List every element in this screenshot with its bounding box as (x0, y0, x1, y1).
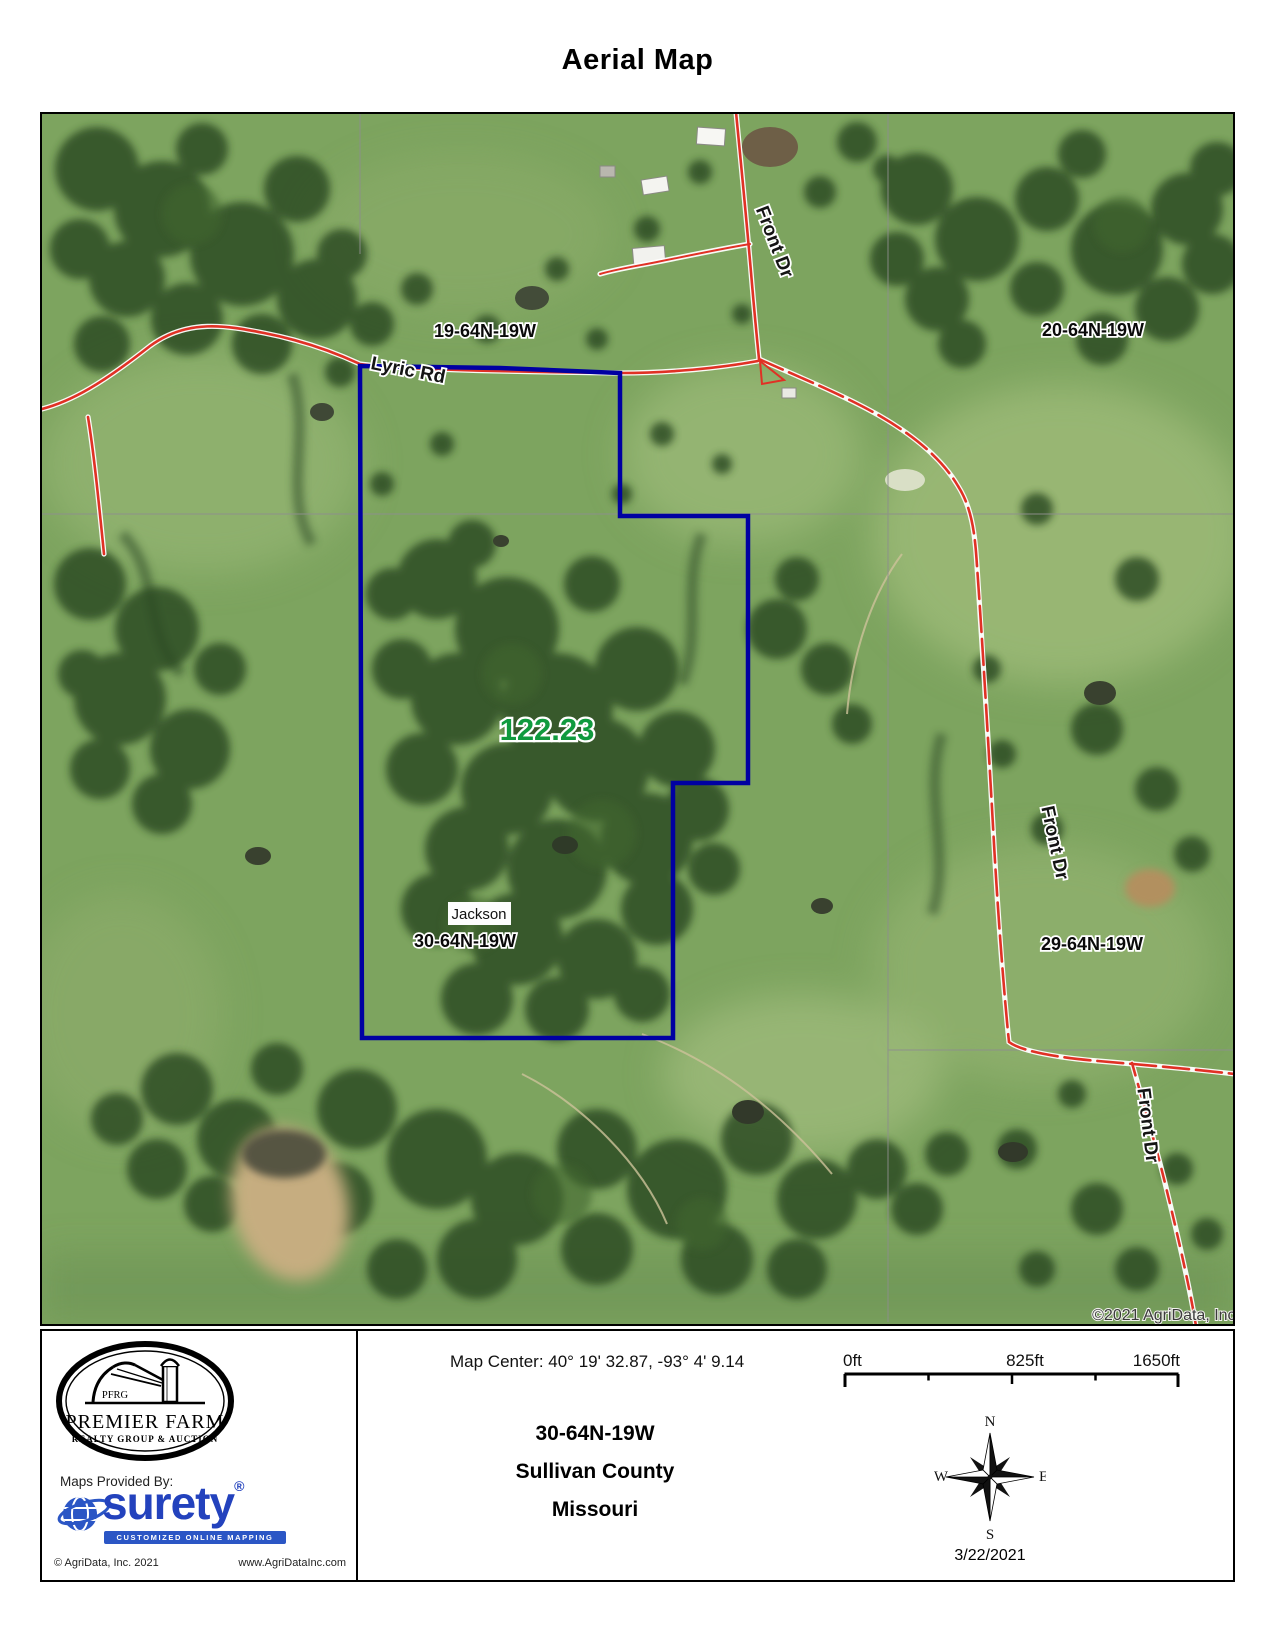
scale-bar: 0ft 825ft 1650ft (843, 1351, 1180, 1394)
map-date: 3/22/2021 (954, 1547, 1025, 1565)
agridata-credit-row: © AgriData, Inc. 2021 www.AgriDataInc.co… (54, 1557, 346, 1569)
page-title: Aerial Map (0, 44, 1275, 77)
scale-label-end: 1650ft (1133, 1351, 1180, 1371)
acreage-label: 122.23 (500, 712, 595, 747)
aerial-map: 19-64N-19W 20-64N-19W 29-64N-19W Lyric R… (40, 112, 1235, 1326)
surety-brand-text: surety (102, 1477, 234, 1529)
scale-bar-rule (843, 1371, 1180, 1389)
township-label-text: Jackson (451, 906, 506, 923)
location-block: 30-64N-19W Sullivan County Missouri (516, 1415, 675, 1529)
section-label-19: 19-64N-19W (434, 321, 536, 341)
location-state: Missouri (516, 1491, 675, 1529)
aerial-imagery: 19-64N-19W 20-64N-19W 29-64N-19W Lyric R… (42, 114, 1233, 1324)
scale-label-middle: 825ft (1006, 1351, 1044, 1371)
scale-bar-labels: 0ft 825ft 1650ft (843, 1351, 1180, 1371)
compass-south: S (986, 1527, 994, 1543)
location-county: Sullivan County (516, 1453, 675, 1491)
premier-farm-name: PREMIER FARM (66, 1411, 225, 1433)
compass-rose: N E S W (934, 1413, 1046, 1545)
pfrg-initials: PFRG (102, 1390, 129, 1401)
surety-logo: surety® CUSTOMIZED ONLINE MAPPING (56, 1488, 346, 1548)
surety-tagline: CUSTOMIZED ONLINE MAPPING (104, 1531, 286, 1544)
premier-farm-tagline: REALTY GROUP & AUCTION (72, 1434, 219, 1444)
compass-west: W (934, 1469, 949, 1485)
footer-left-column: PFRG PREMIER FARM REALTY GROUP & AUCTION… (42, 1331, 358, 1580)
map-center-coordinates: Map Center: 40° 19' 32.87, -93° 4' 9.14 (450, 1352, 744, 1372)
section-label-29: 29-64N-19W (1041, 934, 1143, 954)
agridata-website: www.AgriDataInc.com (238, 1557, 346, 1569)
section-label-20: 20-64N-19W (1042, 320, 1144, 340)
premier-farm-logo: PFRG PREMIER FARM REALTY GROUP & AUCTION (54, 1339, 236, 1463)
footer-panel: PFRG PREMIER FARM REALTY GROUP & AUCTION… (40, 1329, 1235, 1582)
surety-wordmark: surety® (102, 1476, 243, 1530)
footer-right-column: Map Center: 40° 19' 32.87, -93° 4' 9.14 … (358, 1331, 1233, 1580)
registered-mark: ® (234, 1478, 243, 1494)
aerial-map-page: Aerial Map (0, 0, 1275, 1650)
township-label: Jackson (448, 902, 511, 925)
compass-north: N (985, 1414, 996, 1430)
agridata-copyright: © AgriData, Inc. 2021 (54, 1557, 159, 1569)
section-label-30: 30-64N-19W (414, 931, 516, 951)
map-copyright: ©2021 AgriData, Inc. (1092, 1307, 1233, 1324)
compass-center (988, 1475, 993, 1480)
compass-east: E (1039, 1469, 1046, 1485)
location-section: 30-64N-19W (516, 1415, 675, 1453)
scale-label-start: 0ft (843, 1351, 862, 1371)
